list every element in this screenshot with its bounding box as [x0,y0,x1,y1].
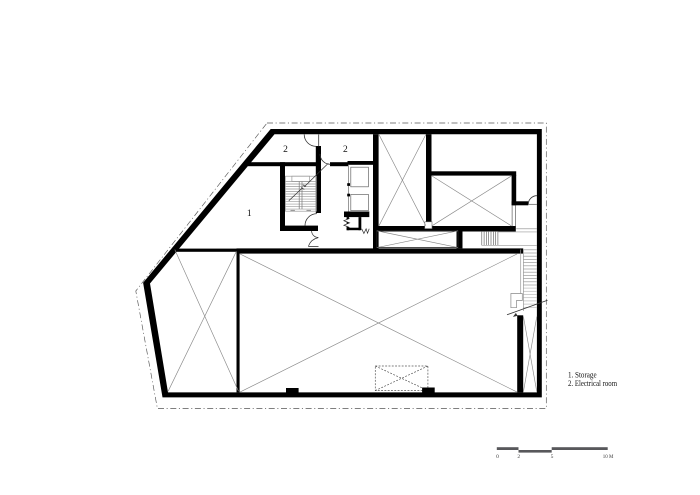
svg-text:2: 2 [343,145,348,155]
svg-text:2. Electrical room: 2. Electrical room [568,379,617,388]
svg-text:10 M: 10 M [603,454,614,460]
svg-text:0: 0 [496,454,499,460]
svg-text:1: 1 [247,209,252,219]
svg-text:2: 2 [517,454,520,460]
svg-text:5: 5 [551,454,554,460]
svg-text:2: 2 [283,145,288,155]
